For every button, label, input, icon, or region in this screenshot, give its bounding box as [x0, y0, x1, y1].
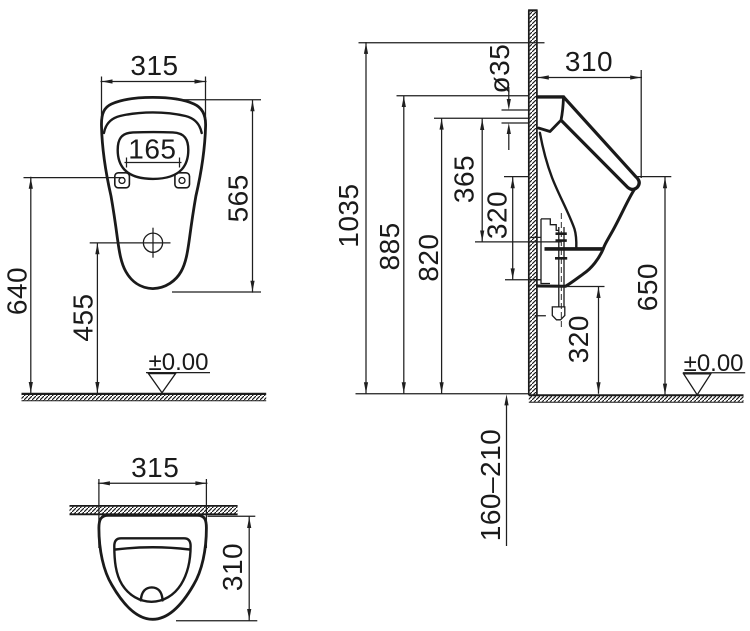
- svg-text:320: 320: [482, 191, 513, 239]
- svg-text:820: 820: [413, 233, 444, 281]
- svg-text:165: 165: [128, 134, 176, 165]
- svg-text:640: 640: [2, 267, 33, 315]
- svg-text:ø35: ø35: [484, 44, 515, 94]
- svg-text:315: 315: [130, 50, 178, 81]
- svg-text:315: 315: [131, 452, 179, 483]
- svg-text:310: 310: [217, 543, 248, 591]
- svg-text:310: 310: [565, 46, 613, 77]
- svg-text:565: 565: [223, 174, 254, 222]
- svg-text:650: 650: [632, 263, 663, 311]
- svg-text:320: 320: [563, 315, 594, 363]
- svg-text:365: 365: [449, 155, 480, 203]
- svg-text:885: 885: [374, 222, 405, 270]
- svg-text:455: 455: [67, 293, 98, 341]
- svg-text:±0.00: ±0.00: [149, 349, 209, 376]
- svg-text:1035: 1035: [333, 183, 364, 247]
- svg-text:160–210: 160–210: [475, 429, 506, 542]
